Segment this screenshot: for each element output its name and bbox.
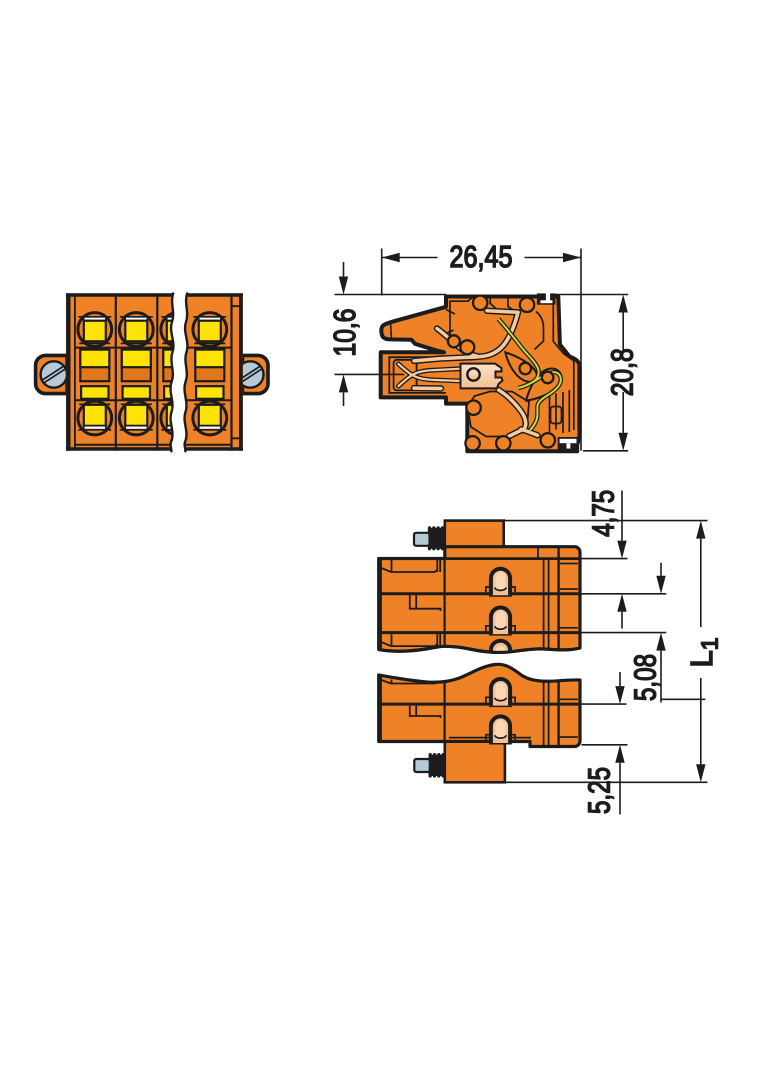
svg-text:26,45: 26,45 [450,239,513,274]
svg-text:10,6: 10,6 [327,309,362,357]
svg-text:20,8: 20,8 [605,348,640,396]
svg-text:5,25: 5,25 [582,767,617,814]
svg-text:4,75: 4,75 [586,490,621,537]
svg-text:L1: L1 [684,637,723,667]
svg-text:5,08: 5,08 [628,654,663,701]
